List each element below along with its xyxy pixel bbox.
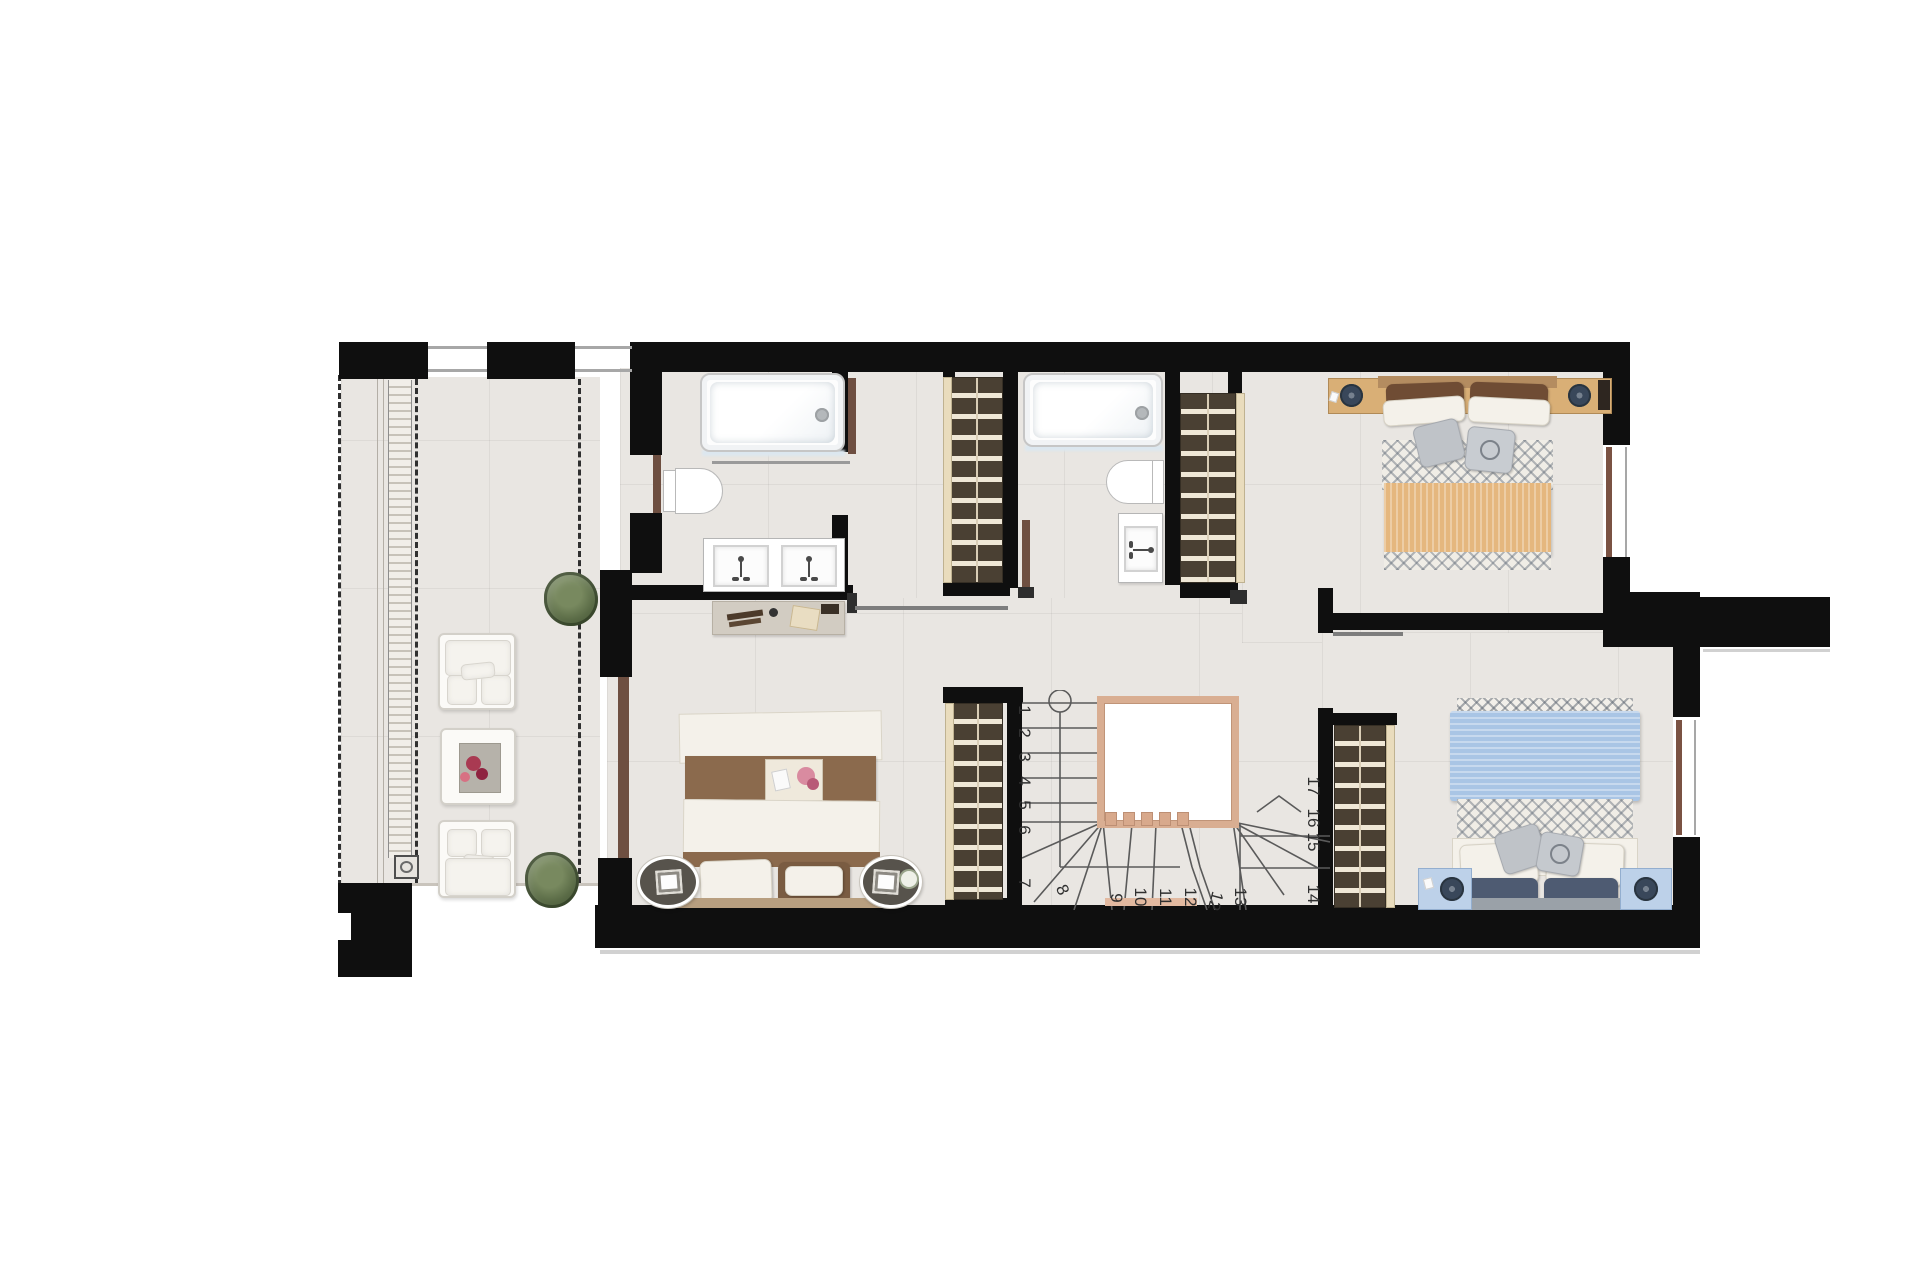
flowers-red — [476, 768, 488, 780]
bed-blanket-blue — [1450, 711, 1640, 801]
bedroom2-door-swing-line — [1333, 632, 1403, 636]
toilet-icon — [1106, 460, 1154, 504]
wall-bedroom3-closet-top — [1333, 713, 1397, 725]
bedroom2-window-frame — [1606, 447, 1612, 557]
wall-under-wardrobeD — [945, 898, 1010, 912]
bed-foot-pattern — [1384, 552, 1551, 570]
stair-step-number: 12 — [1179, 886, 1201, 908]
wall-jog-outer — [1700, 597, 1830, 647]
flowers-white — [901, 871, 917, 887]
faucet-icon — [1123, 541, 1157, 559]
tub-drain-icon — [1135, 406, 1149, 420]
wall-jog-inner — [1603, 592, 1700, 647]
nightstand-note — [1423, 877, 1434, 890]
wall-terrace-pillar — [339, 342, 428, 379]
terrace-glazing-line — [377, 379, 378, 909]
wardrobe-door-strip — [1236, 393, 1245, 583]
armchair-cushion — [481, 829, 511, 857]
armchair-cushion — [447, 829, 477, 857]
wall-bathroom2-right — [1165, 372, 1180, 585]
pillow-spiral-icon — [1550, 844, 1570, 864]
stair-step-number: 9 — [1105, 887, 1127, 909]
bathroom1-door-leaf — [848, 378, 856, 454]
double-vanity — [703, 538, 845, 592]
desk-item — [821, 604, 839, 614]
wardrobe-door-strip — [945, 703, 954, 900]
bed-headboard — [675, 898, 888, 908]
stair-step-number: 11 — [1154, 886, 1176, 908]
bed-bedroom2 — [1378, 376, 1557, 573]
wall-bathroom1-left — [630, 372, 662, 455]
bedroom1-door-swing-line — [855, 606, 1008, 610]
wardrobe-door-strip — [943, 377, 952, 583]
terrace-opening-lintel — [575, 369, 632, 372]
terrace-opening-lintel — [575, 346, 632, 349]
faucet-icon — [800, 553, 818, 587]
terrace-deck-strip — [388, 380, 412, 858]
stair-step-number: 6 — [1013, 819, 1035, 841]
armchair-seat — [445, 858, 511, 896]
terrace-glazing-line — [383, 379, 384, 909]
pillow-spiral-icon — [1480, 440, 1500, 460]
wardrobe-door-strip — [1386, 725, 1395, 908]
bed-bedroom1 — [675, 712, 888, 908]
stair-step-number: 16 — [1302, 807, 1324, 829]
bathtub-icon — [700, 373, 845, 452]
potted-plant-icon — [544, 572, 598, 626]
faucet-icon — [732, 553, 750, 587]
wall-shadow — [1703, 649, 1830, 652]
stair-step-number: 17 — [1302, 775, 1324, 797]
stair-void — [1097, 696, 1239, 828]
door-stub — [1230, 590, 1247, 604]
terrace-opening-lintel — [428, 369, 487, 372]
flowers-pink — [460, 772, 470, 782]
terrace-opening-lintel — [428, 346, 487, 349]
wall-bathroom2-left — [1003, 365, 1018, 588]
stair-baluster — [1105, 812, 1117, 826]
terrace-sliding-door — [618, 677, 629, 858]
wall-shadow — [600, 950, 1700, 954]
wall-bedroom3-right-upper — [1673, 647, 1700, 717]
armchair-cushion — [481, 675, 511, 705]
pillow — [785, 866, 843, 896]
bedroom3-window-frame — [1676, 720, 1682, 835]
dressing-desk — [712, 601, 845, 635]
shelf-line — [712, 461, 850, 464]
wardrobe-bedroom1 — [953, 703, 1003, 900]
picture-frame-icon — [872, 869, 900, 895]
wall-bedroom2-bottom-stub — [1318, 588, 1333, 633]
stair-step-number: 1 — [1013, 699, 1035, 721]
bed-headboard — [1452, 898, 1638, 910]
terrace-armchair-2 — [438, 820, 516, 898]
wall-top — [630, 342, 1630, 372]
wardrobe-bedroom3 — [1334, 725, 1386, 908]
stair-step-number: 3 — [1013, 746, 1035, 768]
nightstand-item — [1598, 380, 1610, 410]
stair-baluster — [1159, 812, 1171, 826]
bedroom2-window-outer-line — [1625, 447, 1627, 557]
terrace-boundary-dashed-left — [338, 375, 341, 913]
stair-step-number: 7 — [1013, 872, 1035, 894]
floor-terrace — [341, 377, 600, 885]
wardrobe-bedroom2 — [1180, 393, 1236, 583]
wall-bedroom3-right-lower — [1673, 837, 1700, 910]
floor-plan-canvas: 1 2 3 4 5 6 7 8 9 10 11 12 12 13 17 16 1… — [0, 0, 1920, 1280]
bathroom2-door-leaf — [1022, 520, 1030, 588]
nightstand-oval — [637, 856, 699, 908]
nightstand-fan-icon — [1634, 877, 1658, 901]
stair-baluster — [1141, 812, 1153, 826]
stair-step-number: 4 — [1013, 770, 1035, 792]
wall-bedroom2-right-lower — [1603, 557, 1630, 594]
wall-bathroom1-left-low — [630, 513, 662, 573]
wardrobe-corridor — [951, 377, 1003, 583]
bathroom1-door-leaf — [653, 455, 661, 513]
toilet-icon — [675, 468, 723, 514]
single-vanity — [1118, 513, 1163, 583]
drain-grate-icon — [400, 861, 413, 873]
potted-plant-icon — [525, 852, 579, 908]
nightstand-blue — [1418, 868, 1472, 910]
floor-connector — [1242, 583, 1322, 643]
stair-step-number: 5 — [1013, 794, 1035, 816]
wall-notch — [338, 913, 351, 940]
door-stub — [1018, 587, 1034, 598]
nightstand-fan-icon — [1440, 877, 1464, 901]
flowers-pink — [807, 778, 819, 790]
desk-item — [789, 605, 820, 631]
stair-baluster — [1123, 812, 1135, 826]
picture-frame-icon — [655, 869, 683, 895]
stair-step-number: 10 — [1129, 886, 1151, 908]
pillow — [1467, 396, 1550, 426]
stair-step-number: 13 — [1229, 886, 1251, 908]
nightstand-fan-icon — [1340, 384, 1363, 407]
nightstand-oval — [860, 856, 922, 908]
bed-blanket-tan — [1384, 483, 1551, 555]
bedroom3-window-outer-line — [1694, 720, 1696, 835]
nightstand-blue — [1620, 868, 1672, 910]
bathtub-icon — [1023, 373, 1163, 447]
terrace-coffee-table — [440, 728, 516, 805]
stair-step-number: 14 — [1302, 883, 1324, 905]
terrace-boundary-dashed-mid — [415, 379, 418, 883]
stair-baluster — [1177, 812, 1189, 826]
toilet-tank — [1152, 460, 1164, 504]
wall-bedroom1-west-upper — [600, 620, 632, 677]
wall-bottom — [595, 905, 1700, 948]
stair-step-number: 15 — [1302, 831, 1324, 853]
nightstand-fan-icon — [1568, 384, 1591, 407]
bed-bedroom3 — [1450, 698, 1640, 910]
tub-drain-icon — [815, 408, 829, 422]
bed-sheet — [683, 799, 881, 859]
wall-bedroom2-bottom — [1333, 613, 1603, 630]
door-stub — [847, 593, 857, 613]
wall-terrace-pillar — [487, 342, 575, 379]
terrace-armchair-1 — [438, 633, 516, 710]
wall-bedroom1-west-lower — [598, 858, 632, 913]
floor-drain — [394, 855, 419, 879]
desk-item — [769, 608, 778, 617]
stair-step-number: 2 — [1013, 722, 1035, 744]
terrace-boundary-dashed-right — [578, 379, 581, 883]
